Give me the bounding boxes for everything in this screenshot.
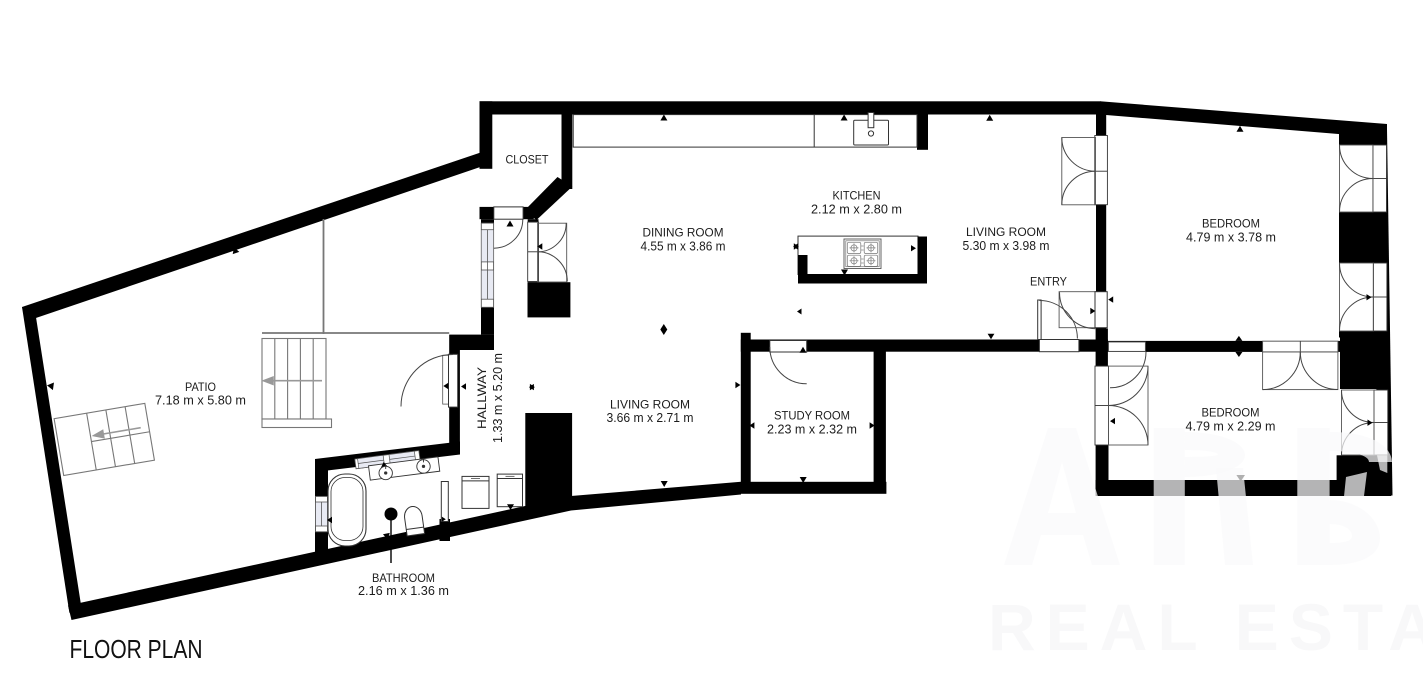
svg-text:4.79 m x 2.29 m: 4.79 m x 2.29 m: [1186, 419, 1276, 434]
svg-text:DINING ROOM: DINING ROOM: [643, 226, 724, 240]
svg-text:3.66 m x 2.71 m: 3.66 m x 2.71 m: [607, 410, 694, 425]
svg-text:STUDY ROOM: STUDY ROOM: [774, 409, 850, 423]
svg-text:HALLWAY: HALLWAY: [475, 367, 489, 429]
svg-text:7.18 m x 5.80 m: 7.18 m x 5.80 m: [155, 393, 246, 408]
svg-text:REAL ESTATE: REAL ESTATE: [988, 590, 1423, 664]
svg-text:BEDROOM: BEDROOM: [1202, 217, 1260, 231]
svg-text:2.16 m x 1.36 m: 2.16 m x 1.36 m: [358, 583, 449, 598]
svg-text:ENTRY: ENTRY: [1030, 275, 1067, 289]
svg-text:FLOOR PLAN: FLOOR PLAN: [70, 634, 203, 664]
svg-text:2.23 m x 2.32 m: 2.23 m x 2.32 m: [767, 422, 857, 437]
svg-text:KITCHEN: KITCHEN: [833, 189, 881, 203]
svg-text:CLOSET: CLOSET: [506, 153, 550, 167]
svg-text:4.79 m x 3.78 m: 4.79 m x 3.78 m: [1186, 230, 1276, 245]
svg-text:BEDROOM: BEDROOM: [1202, 406, 1260, 420]
svg-text:2.12 m x 2.80 m: 2.12 m x 2.80 m: [811, 202, 902, 217]
svg-text:LIVING ROOM: LIVING ROOM: [966, 225, 1046, 239]
svg-text:1.33 m x 5.20 m: 1.33 m x 5.20 m: [490, 353, 505, 443]
svg-text:4.55 m x 3.86 m: 4.55 m x 3.86 m: [641, 239, 726, 254]
svg-text:5.30 m x 3.98 m: 5.30 m x 3.98 m: [963, 238, 1050, 253]
